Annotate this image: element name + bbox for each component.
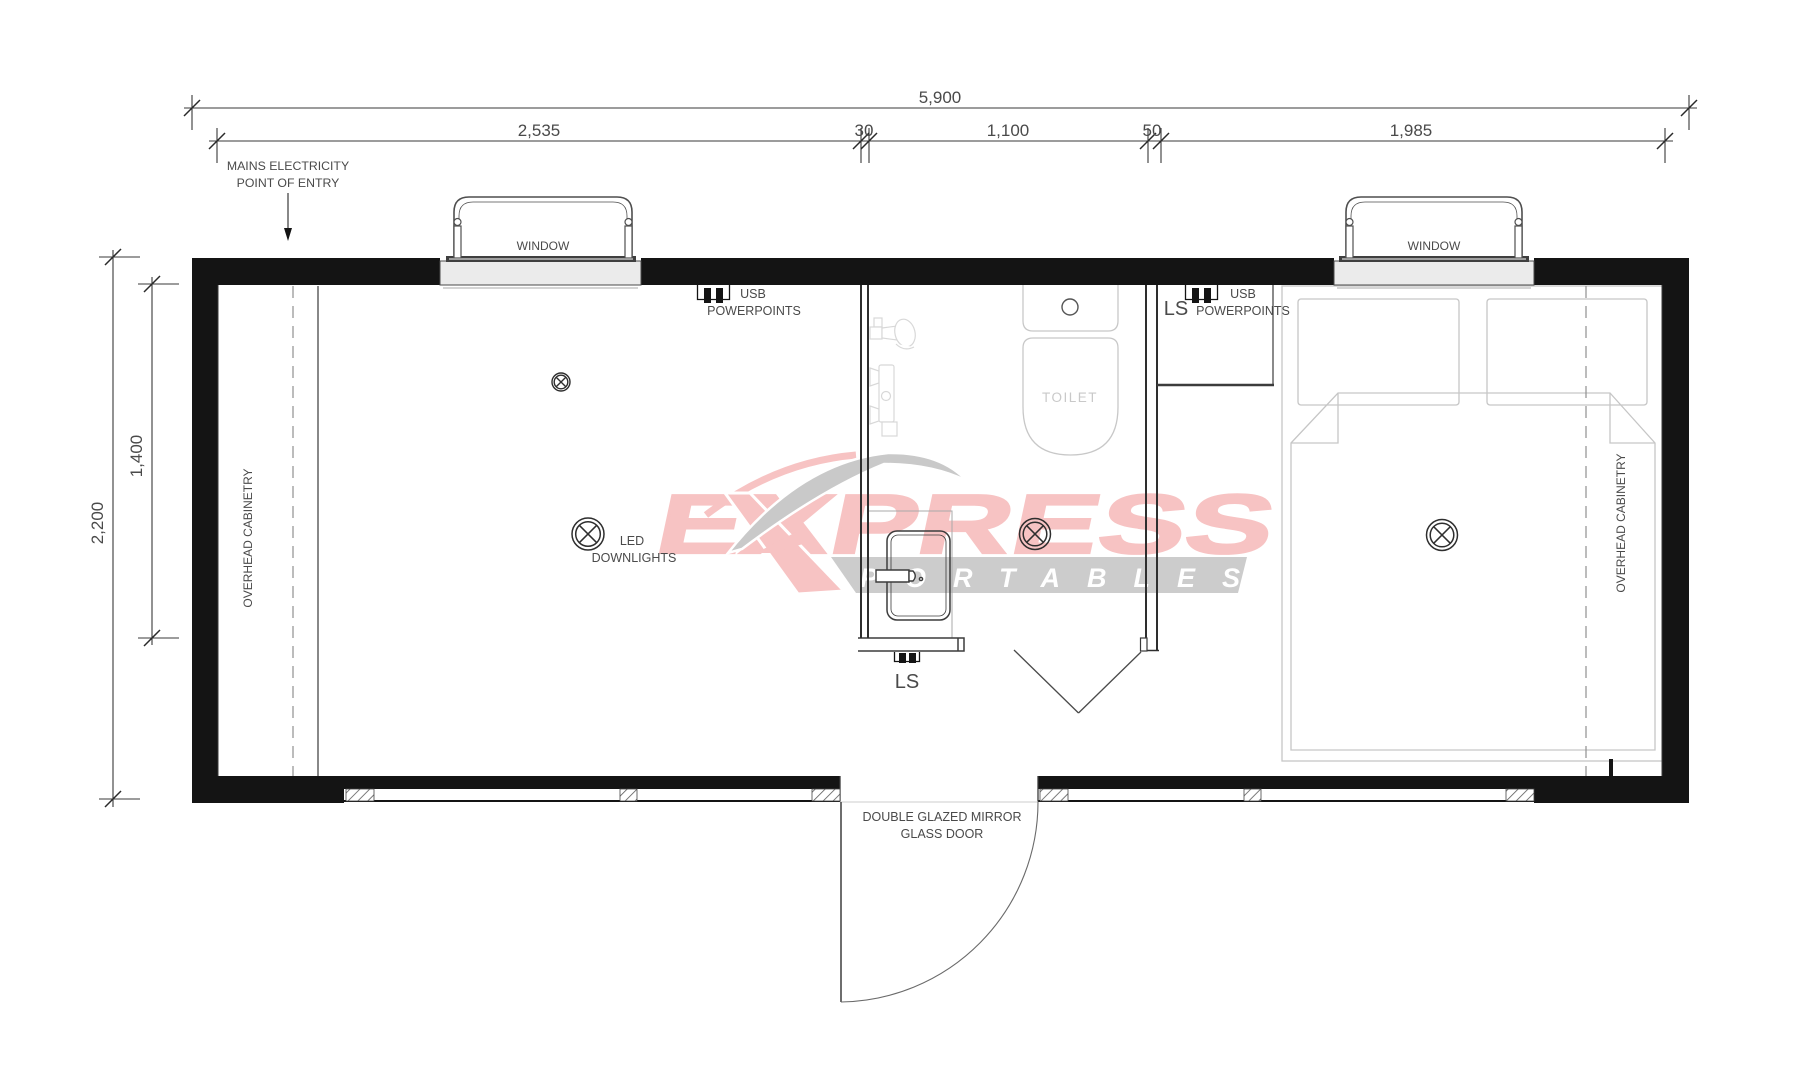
svg-text:OVERHEAD CABINETRY: OVERHEAD CABINETRY [1614, 453, 1628, 592]
svg-text:2,200: 2,200 [88, 502, 107, 545]
svg-text:LS: LS [1164, 298, 1188, 320]
svg-text:DOUBLE GLAZED MIRROR: DOUBLE GLAZED MIRROR [862, 810, 1021, 824]
svg-text:2,535: 2,535 [518, 121, 561, 140]
svg-text:USB: USB [1230, 287, 1256, 301]
svg-text:LED: LED [620, 534, 644, 548]
svg-text:WINDOW: WINDOW [1408, 239, 1461, 253]
svg-text:5,900: 5,900 [919, 88, 962, 107]
svg-text:TOILET: TOILET [1042, 390, 1098, 405]
svg-text:1,100: 1,100 [987, 121, 1030, 140]
svg-text:POWERPOINTS: POWERPOINTS [707, 304, 801, 318]
svg-text:USB: USB [740, 287, 766, 301]
svg-text:LS: LS [895, 671, 919, 693]
svg-text:MAINS ELECTRICITY: MAINS ELECTRICITY [227, 159, 349, 173]
svg-text:DOWNLIGHTS: DOWNLIGHTS [592, 551, 677, 565]
svg-text:30: 30 [855, 121, 874, 140]
svg-text:1,400: 1,400 [127, 435, 146, 478]
svg-text:OVERHEAD CABINETRY: OVERHEAD CABINETRY [241, 468, 255, 607]
svg-text:GLASS DOOR: GLASS DOOR [901, 827, 984, 841]
svg-text:WINDOW: WINDOW [517, 239, 570, 253]
svg-text:POWERPOINTS: POWERPOINTS [1196, 304, 1290, 318]
svg-text:50: 50 [1143, 121, 1162, 140]
svg-text:1,985: 1,985 [1390, 121, 1433, 140]
svg-text:POINT OF ENTRY: POINT OF ENTRY [237, 176, 340, 190]
